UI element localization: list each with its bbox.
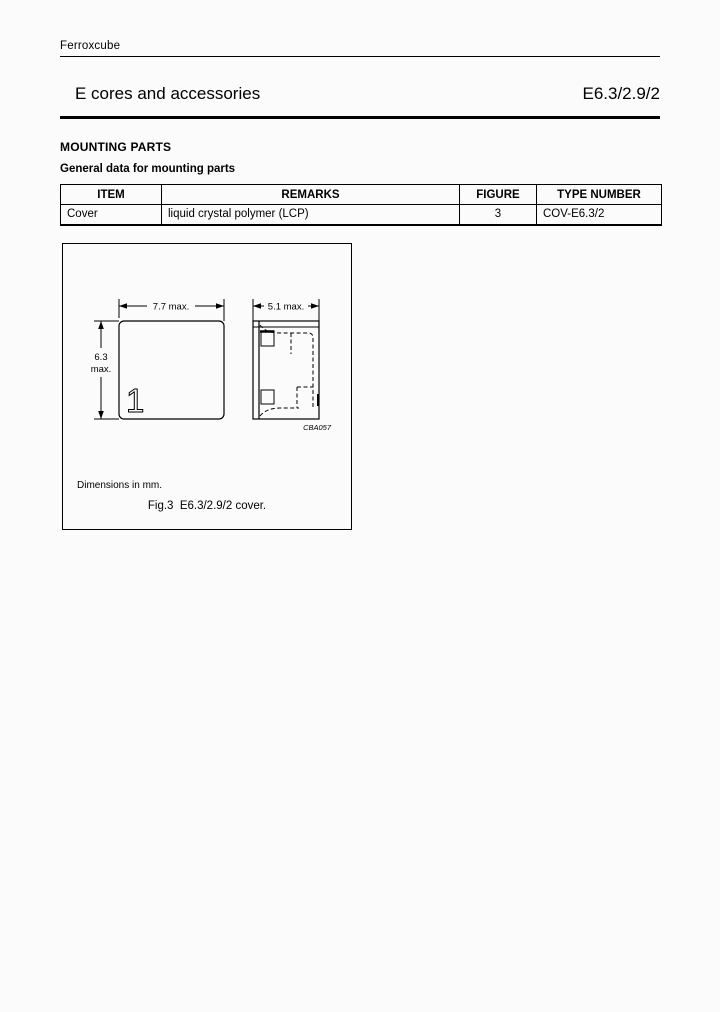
clip-slot-top [261,332,274,346]
cell-type-number: COV-E6.3/2 [537,205,662,225]
brand-text: Ferroxcube [60,40,120,52]
col-header-figure: FIGURE [460,185,537,205]
arrow-right-icon [216,303,224,309]
header-rule-thick [60,116,660,119]
cell-item: Cover [61,205,162,225]
figure-box: 7.7 max. 5.1 max. 6.3 max. 1 CBA057 Dime… [62,243,352,530]
title-row: E cores and accessories E6.3/2.9/2 [60,84,660,104]
dim-front-height-suffix: max. [91,364,112,375]
cell-figure: 3 [460,205,537,225]
arrow-left-icon [253,303,261,309]
part-number: E6.3/2.9/2 [582,84,660,104]
drawing-code: CBA057 [303,423,332,432]
page-title: E cores and accessories [60,84,260,104]
arrow-up-icon [98,321,104,329]
table-header-row: ITEM REMARKS FIGURE TYPE NUMBER [61,185,662,205]
front-marking-numeral: 1 [126,382,144,419]
dim-front-width-label: 7.7 max. [153,302,189,313]
section-subheading: General data for mounting parts [60,163,235,175]
section-heading: MOUNTING PARTS [60,140,171,154]
figure-caption: Fig.3 E6.3/2.9/2 cover. [63,500,351,512]
arrow-left-icon [119,303,127,309]
mounting-parts-table: ITEM REMARKS FIGURE TYPE NUMBER Cover li… [60,184,662,226]
col-header-type-number: TYPE NUMBER [537,185,662,205]
clip-slot-bottom [261,390,274,404]
header-rule-thin [60,56,660,57]
table-row: Cover liquid crystal polymer (LCP) 3 COV… [61,205,662,225]
dimensions-note: Dimensions in mm. [77,480,162,491]
datasheet-page: Ferroxcube E cores and accessories E6.3/… [0,0,720,1012]
col-header-remarks: REMARKS [162,185,460,205]
col-header-item: ITEM [61,185,162,205]
cell-remarks: liquid crystal polymer (LCP) [162,205,460,225]
arrow-down-icon [98,411,104,419]
arrow-right-icon [311,303,319,309]
dim-front-height-value: 6.3 [94,352,107,363]
dim-side-width-label: 5.1 max. [268,302,304,313]
